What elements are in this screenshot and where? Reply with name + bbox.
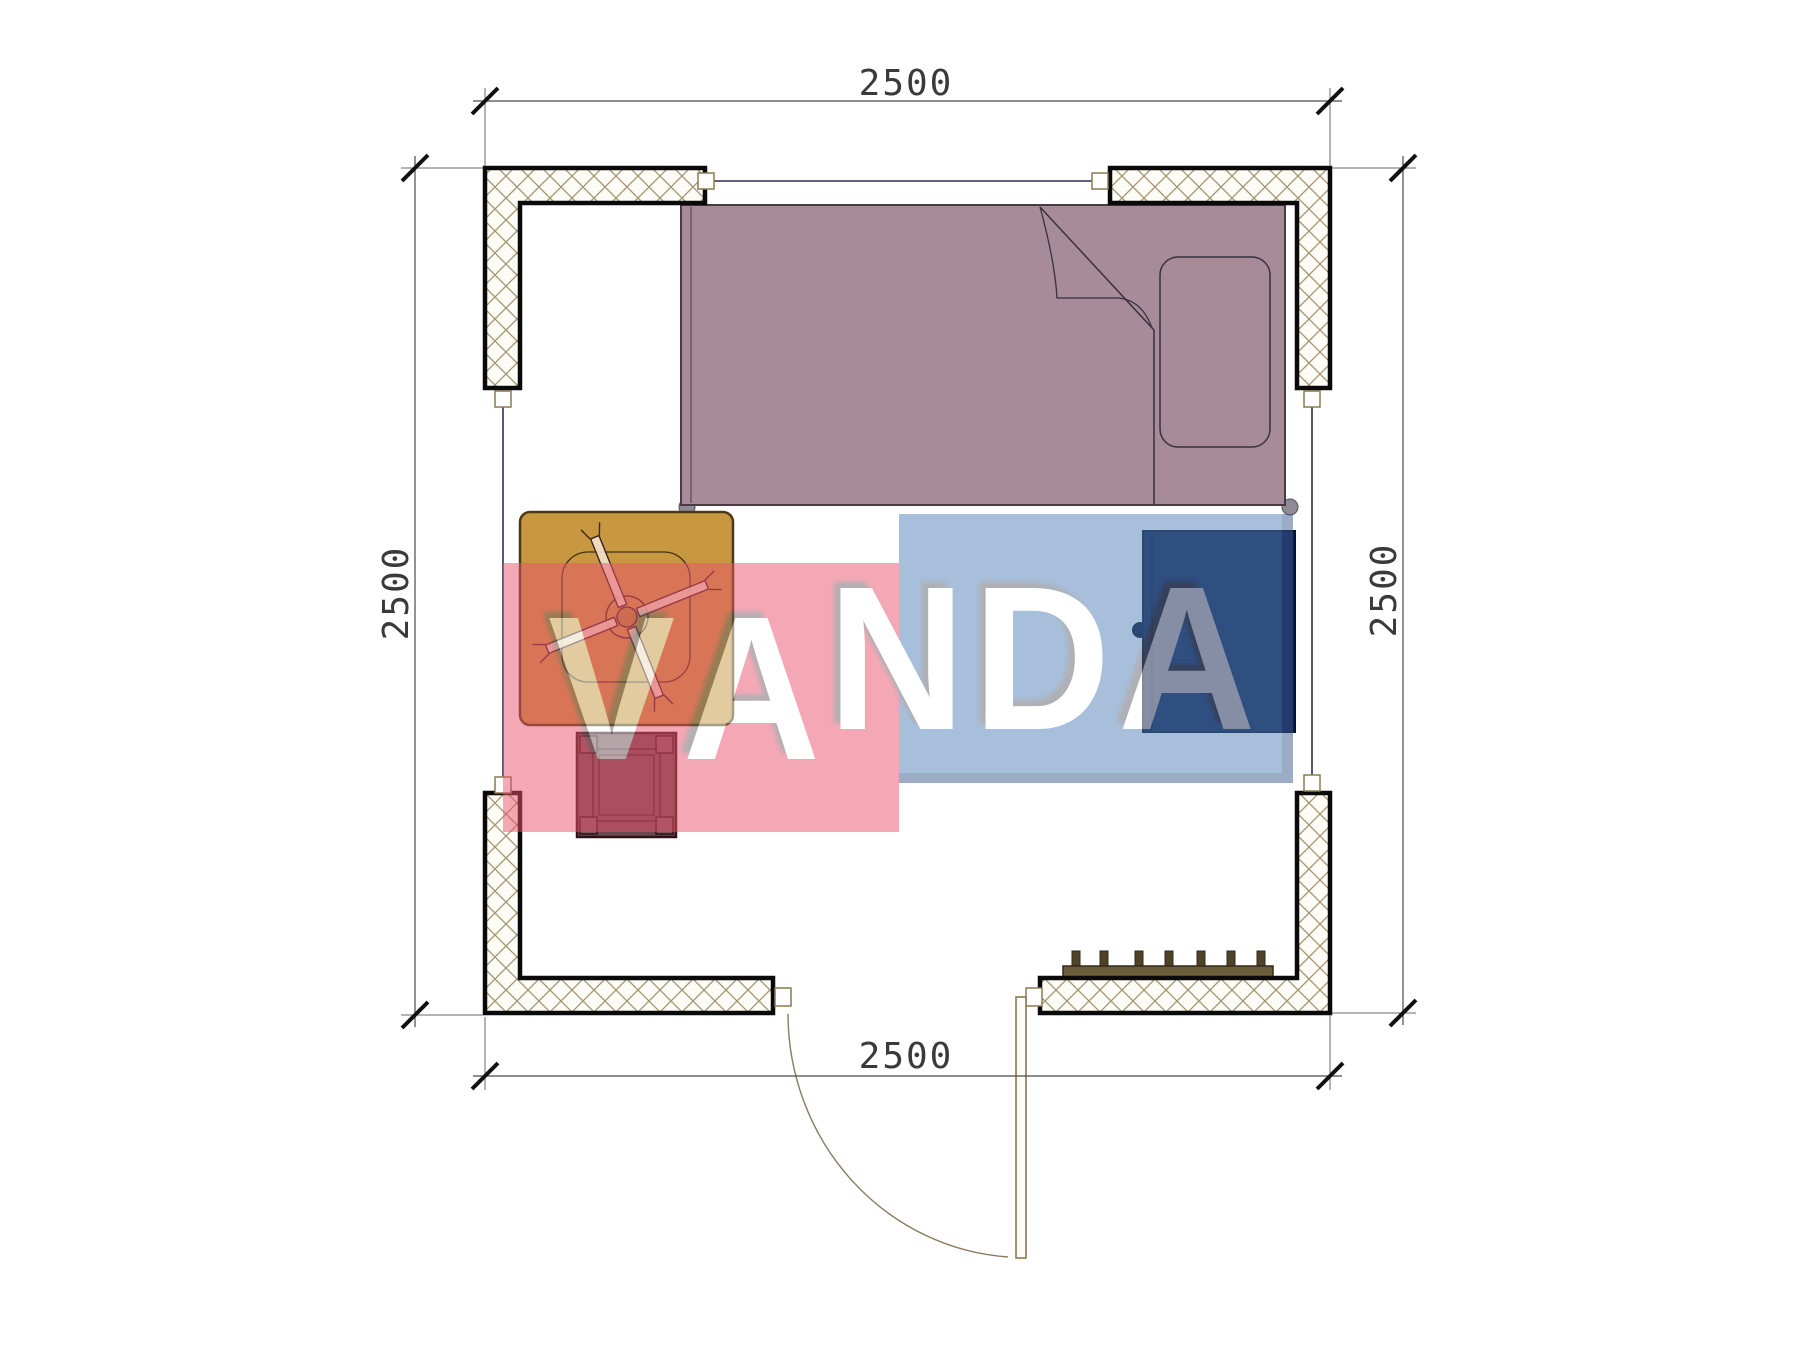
radiator-fin <box>1072 951 1080 967</box>
door-jamb-right <box>1026 988 1042 1006</box>
table <box>499 489 754 744</box>
door-jamb-left <box>775 988 791 1006</box>
radiator-fin <box>1197 951 1205 967</box>
floor-plan-canvas: 2500 2500 2500 2500 VANDA <box>0 0 1800 1350</box>
dim-label-top: 2500 <box>859 63 954 104</box>
radiator-fin <box>1227 951 1235 967</box>
floor-plan-drawing: 2500 2500 2500 2500 <box>0 0 1800 1350</box>
wall-top-left <box>485 168 705 388</box>
dim-label-bottom: 2500 <box>859 1036 954 1077</box>
stool-leg-br <box>656 817 673 834</box>
radiator <box>1063 951 1273 979</box>
stool-leg-tr <box>656 736 673 753</box>
window-left-connector-bottom <box>495 777 511 793</box>
wall-bottom-right <box>1040 793 1330 1013</box>
radiator-fin <box>1135 951 1143 967</box>
stool-leg-tl <box>580 736 597 753</box>
window-top-connector-left <box>698 173 714 189</box>
stool-leg-bl <box>580 817 597 834</box>
stool <box>577 733 676 837</box>
door-leaf <box>1016 997 1026 1258</box>
bed <box>679 205 1298 515</box>
cabinet <box>1132 531 1295 732</box>
dim-label-right: 2500 <box>1364 543 1405 638</box>
radiator-fin <box>1257 951 1265 967</box>
window-right-connector-top <box>1304 391 1320 407</box>
door <box>775 988 1042 1258</box>
dim-label-left: 2500 <box>376 546 417 641</box>
pillow <box>1160 257 1270 447</box>
window-right-connector-bottom <box>1304 775 1320 791</box>
radiator-fin <box>1165 951 1173 967</box>
window-left-connector-top <box>495 391 511 407</box>
window-top-connector-right <box>1092 173 1108 189</box>
radiator-fin <box>1100 951 1108 967</box>
cabinet-body <box>1143 531 1295 732</box>
